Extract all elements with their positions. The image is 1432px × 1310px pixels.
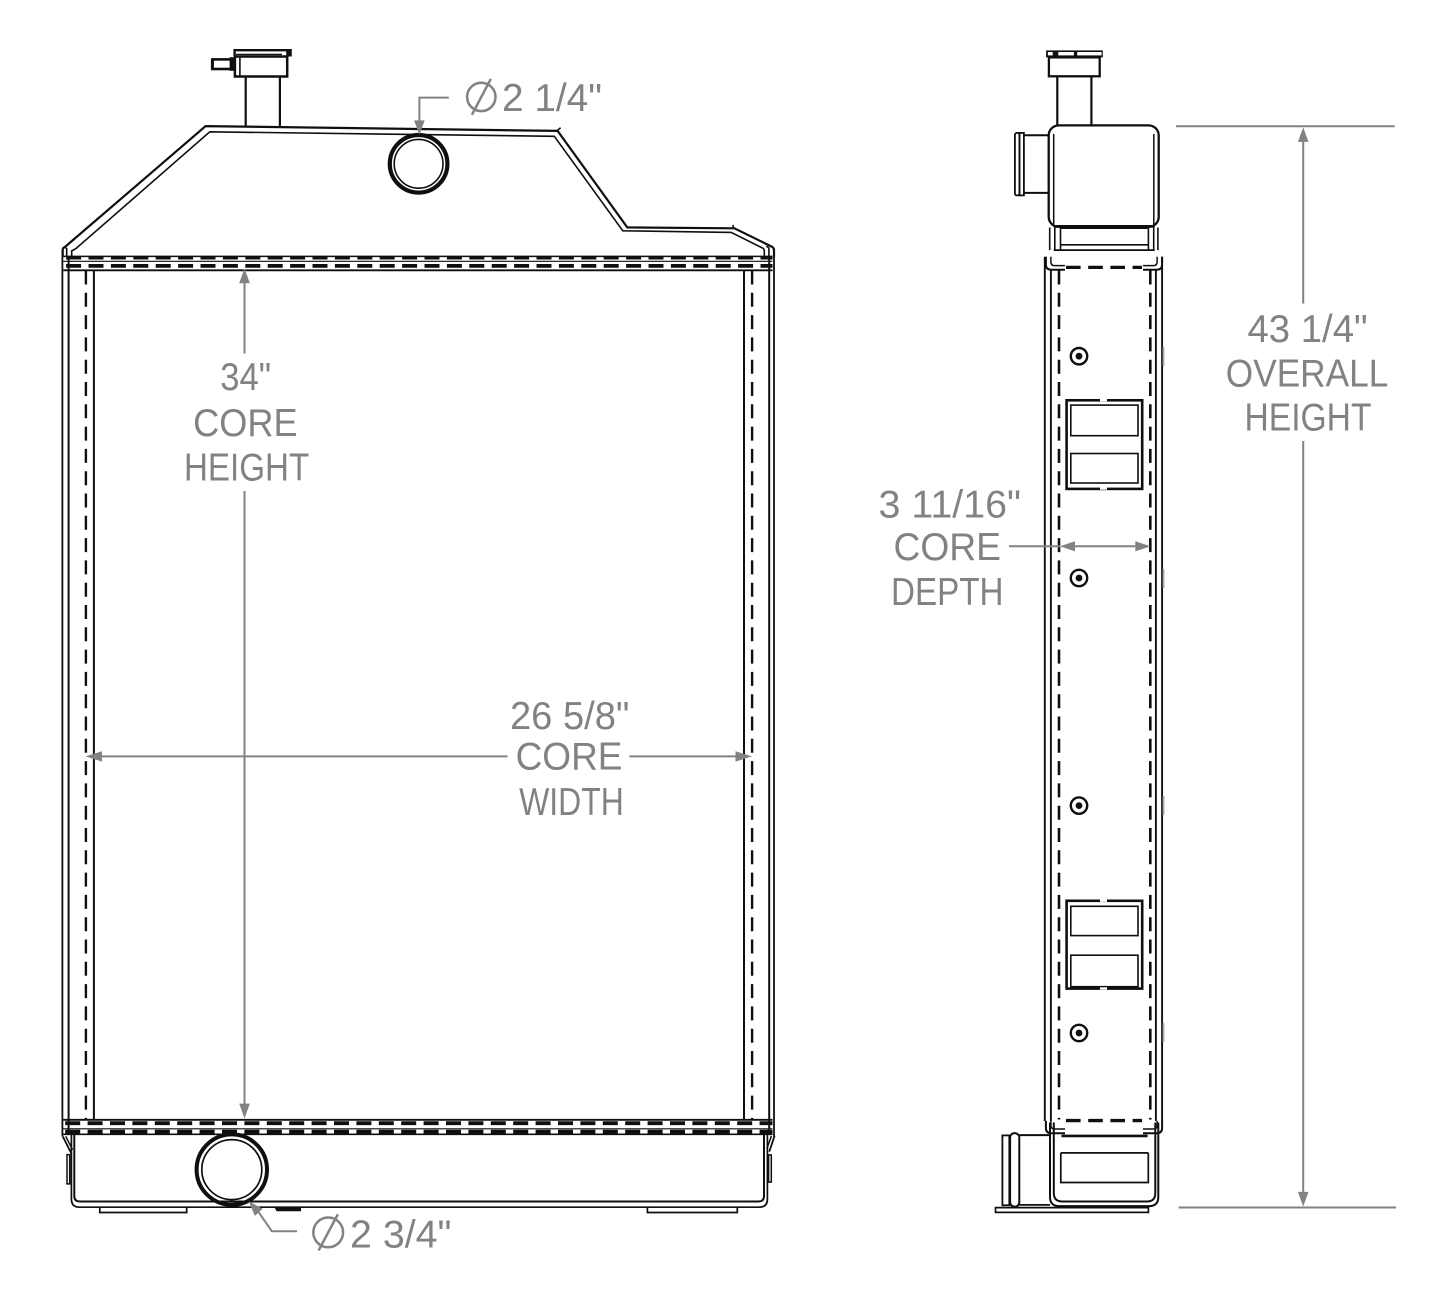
- svg-text:2 3/4": 2 3/4": [350, 1213, 452, 1256]
- svg-text:HEIGHT: HEIGHT: [1245, 397, 1372, 440]
- svg-text:HEIGHT: HEIGHT: [184, 447, 309, 490]
- svg-text:OVERALL: OVERALL: [1226, 352, 1389, 395]
- svg-text:CORE: CORE: [193, 402, 298, 445]
- svg-text:26 5/8": 26 5/8": [510, 695, 629, 738]
- svg-text:43 1/4": 43 1/4": [1248, 308, 1368, 351]
- svg-text:CORE: CORE: [516, 735, 623, 778]
- svg-text:2 1/4": 2 1/4": [502, 77, 602, 120]
- svg-text:34": 34": [220, 356, 271, 399]
- svg-text:3 11/16": 3 11/16": [879, 483, 1022, 526]
- svg-text:DEPTH: DEPTH: [891, 571, 1004, 614]
- svg-text:WIDTH: WIDTH: [519, 781, 624, 824]
- svg-text:CORE: CORE: [894, 526, 1002, 569]
